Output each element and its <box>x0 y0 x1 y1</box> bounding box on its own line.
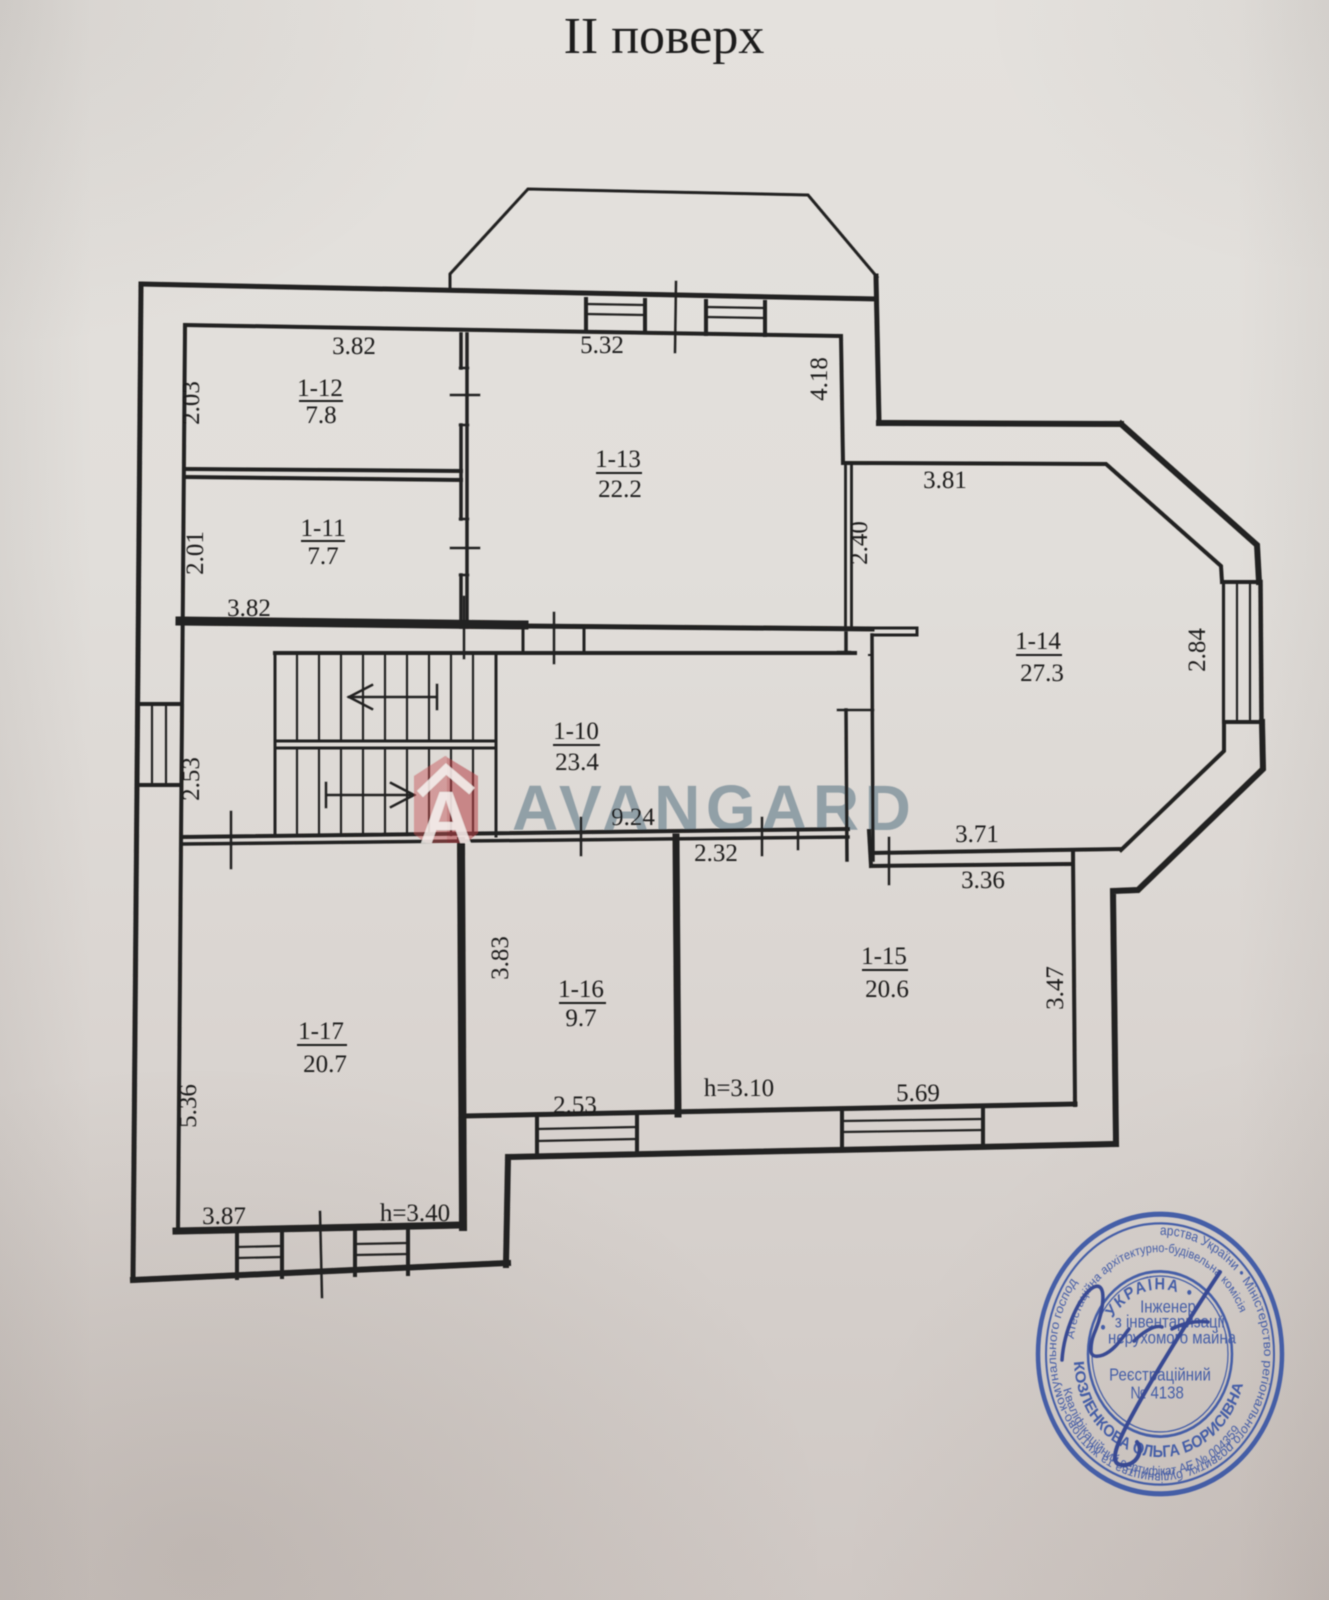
svg-text:2.32: 2.32 <box>694 840 738 867</box>
svg-text:2.03: 2.03 <box>178 381 205 425</box>
svg-text:1-16: 1-16 <box>558 976 604 1003</box>
svg-text:20.7: 20.7 <box>303 1051 347 1078</box>
svg-text:2.84: 2.84 <box>1184 628 1211 672</box>
svg-text:A: A <box>419 776 472 859</box>
svg-text:1-17: 1-17 <box>298 1018 344 1045</box>
svg-text:1-11: 1-11 <box>301 515 346 542</box>
svg-text:3.36: 3.36 <box>961 867 1005 894</box>
svg-text:1-15: 1-15 <box>861 943 907 970</box>
svg-text:3.82: 3.82 <box>332 333 376 360</box>
svg-text:7.8: 7.8 <box>305 402 336 429</box>
svg-text:2.40: 2.40 <box>846 521 873 565</box>
svg-text:1-10: 1-10 <box>553 718 599 745</box>
svg-text:3.71: 3.71 <box>955 821 999 848</box>
svg-text:3.47: 3.47 <box>1042 966 1069 1010</box>
svg-text:2.53: 2.53 <box>553 1092 597 1119</box>
svg-text:5.32: 5.32 <box>580 332 624 359</box>
svg-text:h=3.40: h=3.40 <box>380 1200 450 1227</box>
svg-text:1-14: 1-14 <box>1015 628 1061 655</box>
svg-text:22.2: 22.2 <box>598 476 642 503</box>
svg-text:2.53: 2.53 <box>178 757 205 801</box>
svg-text:5.36: 5.36 <box>175 1084 202 1128</box>
svg-text:9.7: 9.7 <box>565 1005 596 1032</box>
svg-text:7.7: 7.7 <box>307 543 338 570</box>
svg-text:3.82: 3.82 <box>227 595 271 622</box>
svg-text:20.6: 20.6 <box>865 976 909 1003</box>
svg-text:4.18: 4.18 <box>806 357 833 401</box>
svg-text:3.87: 3.87 <box>202 1203 246 1230</box>
svg-text:27.3: 27.3 <box>1020 660 1064 687</box>
svg-text:3.81: 3.81 <box>923 467 967 494</box>
svg-text:2.01: 2.01 <box>182 531 209 575</box>
svg-text:1-13: 1-13 <box>595 446 641 473</box>
svg-text:II поверх: II поверх <box>564 8 765 65</box>
svg-text:h=3.10: h=3.10 <box>704 1075 774 1102</box>
svg-text:5.69: 5.69 <box>896 1080 940 1107</box>
svg-text:23.4: 23.4 <box>555 749 599 776</box>
svg-text:3.83: 3.83 <box>487 936 514 980</box>
svg-text:1-12: 1-12 <box>297 375 343 402</box>
svg-text:9.24: 9.24 <box>611 804 655 831</box>
